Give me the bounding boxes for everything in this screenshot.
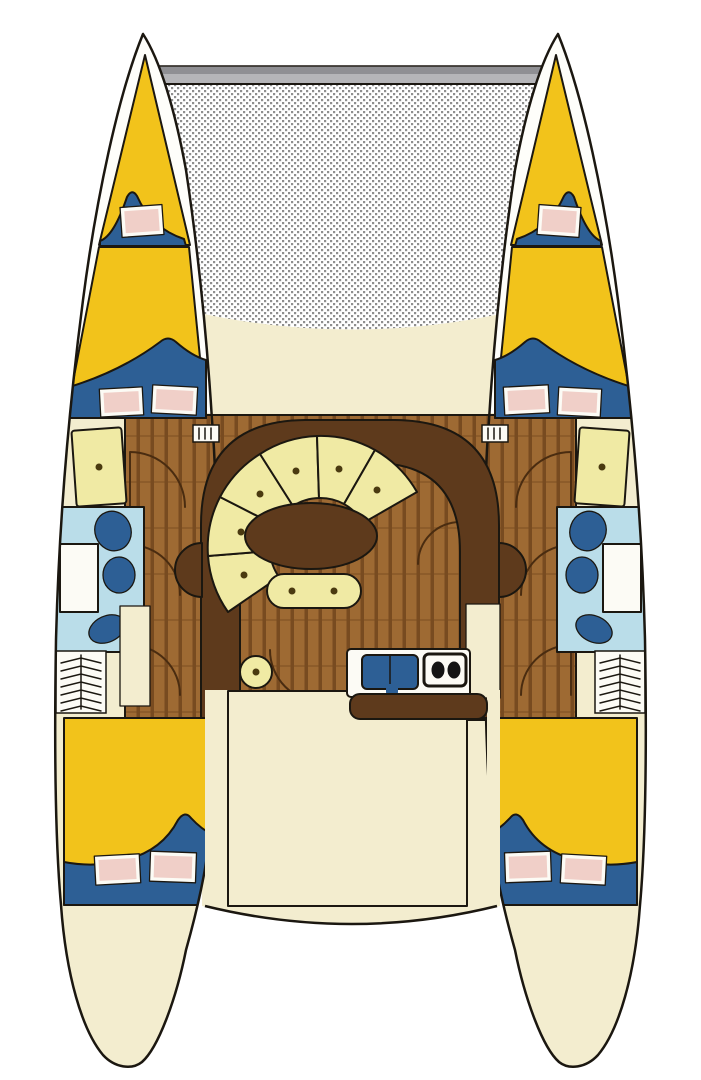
galley — [347, 649, 487, 719]
stove-burner — [448, 662, 461, 679]
pillow-center — [561, 391, 597, 413]
pillow — [94, 854, 140, 885]
catamaran-floor-plan-page — [0, 0, 701, 1080]
cockpit-side-deck-starboard — [487, 690, 500, 906]
pillow — [120, 205, 164, 238]
bench-cushion — [267, 574, 361, 608]
bench-button — [331, 588, 338, 595]
cushion-button — [238, 529, 245, 536]
pillow — [151, 385, 197, 415]
pillow-center — [154, 855, 193, 878]
pillow — [557, 387, 601, 417]
pillow-center — [103, 391, 139, 413]
bench-button — [289, 588, 296, 595]
hatch-frame — [193, 425, 219, 442]
deck-hatch — [193, 425, 219, 442]
cockpit-side-deck-port — [205, 690, 228, 906]
sink-faucet — [386, 684, 398, 694]
starboard-companionway-steps — [595, 651, 645, 713]
pillow-center — [124, 209, 159, 233]
pillow — [149, 851, 196, 883]
pillow — [504, 851, 551, 883]
pillow-center — [509, 855, 548, 878]
crossbeam-top-edge — [158, 67, 546, 74]
bow-crossbeam — [156, 66, 548, 84]
seat-button — [599, 464, 606, 471]
pillow-center — [508, 389, 546, 411]
catamaran-floor-plan — [0, 0, 701, 1080]
cushion-button — [293, 468, 300, 475]
stool-button — [253, 669, 260, 676]
bathroom-toilet — [566, 557, 598, 593]
pillow — [560, 854, 606, 885]
cushion-button — [374, 487, 381, 494]
pillow — [99, 387, 143, 417]
galley-stove — [424, 654, 466, 686]
cushion-button — [336, 466, 343, 473]
starboard-bathroom — [557, 506, 646, 652]
trampoline-net — [163, 84, 541, 331]
bathroom-toilet — [103, 557, 135, 593]
seat-button — [96, 464, 103, 471]
pillow — [537, 205, 581, 238]
port-companionway-steps — [56, 651, 106, 713]
deck-hatch — [482, 425, 508, 442]
stove-burner — [432, 662, 445, 679]
salon-table — [245, 503, 377, 569]
pillow-center — [99, 858, 137, 881]
shower-pan — [60, 544, 98, 612]
pillow-center — [564, 858, 602, 881]
port-corridor-cabinet — [120, 606, 150, 706]
pillow-center — [541, 209, 576, 233]
cushion-button — [241, 572, 248, 579]
hatch-frame — [482, 425, 508, 442]
cushion-button — [257, 491, 264, 498]
cockpit — [228, 691, 467, 906]
shower-pan — [603, 544, 641, 612]
galley-counter-bar — [350, 694, 487, 719]
pillow-center — [156, 389, 194, 411]
pillow — [503, 385, 549, 415]
salon-bench — [267, 574, 361, 608]
nav-cabinet — [466, 604, 500, 698]
